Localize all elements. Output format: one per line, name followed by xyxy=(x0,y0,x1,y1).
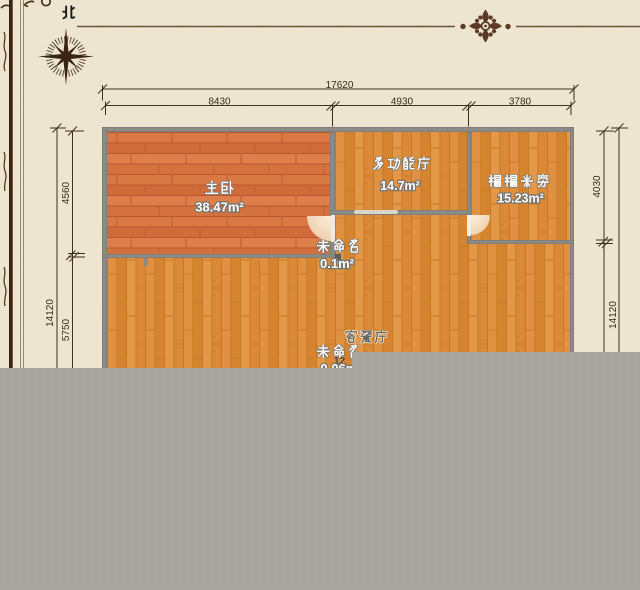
svg-text:15.23m²: 15.23m² xyxy=(497,192,544,206)
svg-text:38.47m²: 38.47m² xyxy=(195,200,244,215)
svg-text:14.7m²: 14.7m² xyxy=(380,179,420,193)
svg-text:0.1m²: 0.1m² xyxy=(320,256,355,271)
